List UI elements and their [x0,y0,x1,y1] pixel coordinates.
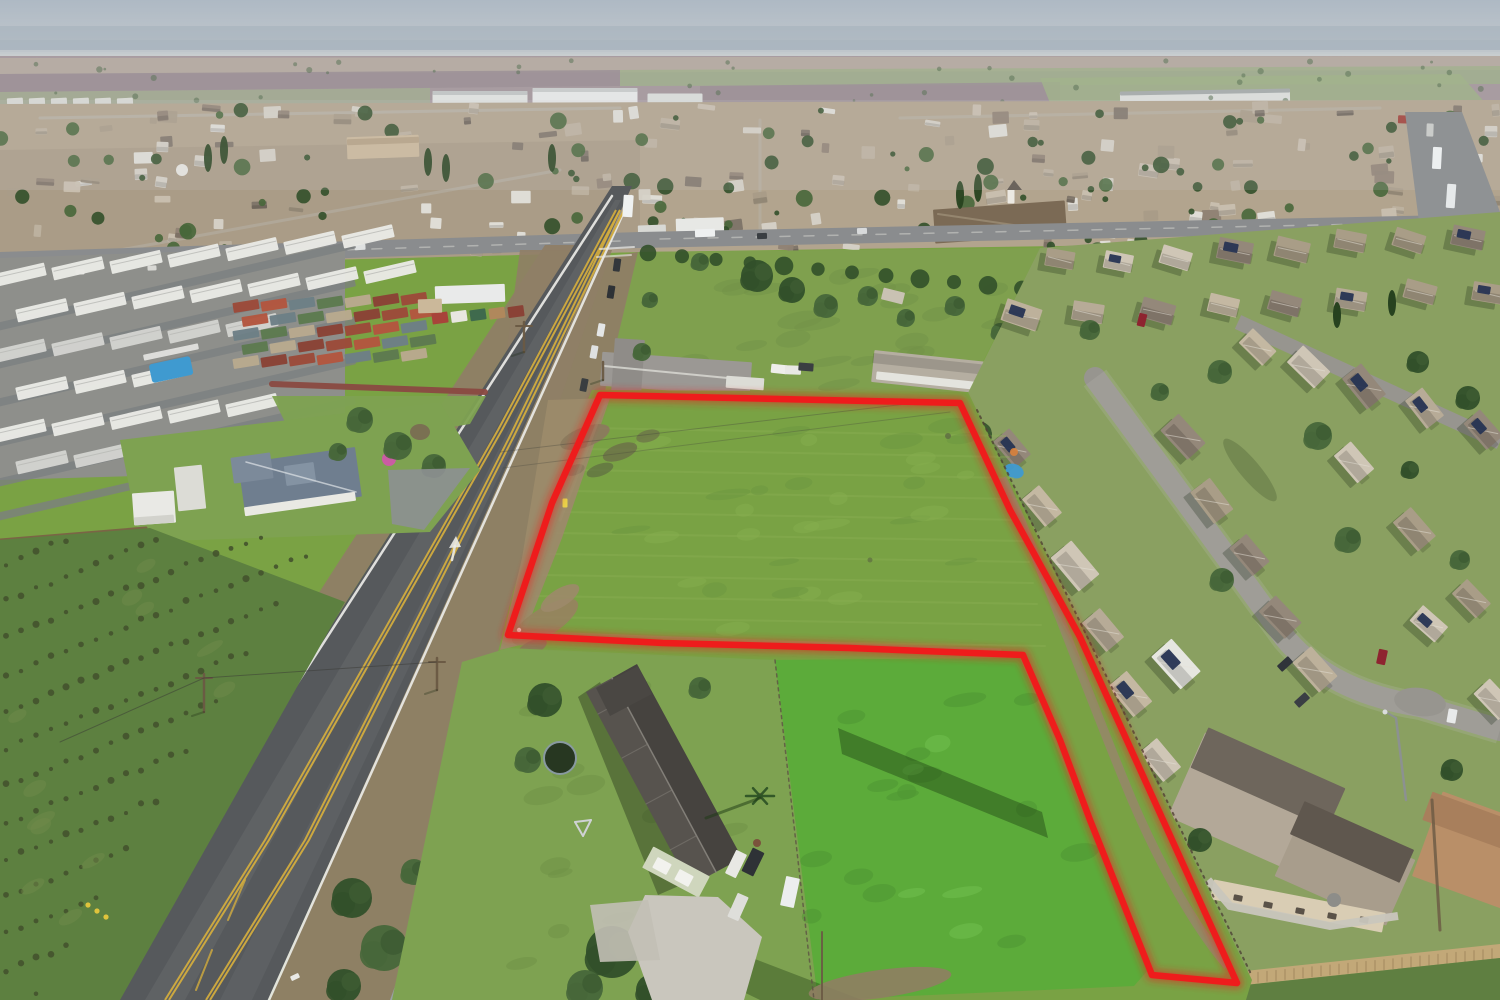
aerial-photo [0,0,1500,1000]
mobile-home-park-layer [0,224,525,545]
scene-svg [0,0,1500,1000]
excluded-home-parcel-layer [392,648,1148,1000]
